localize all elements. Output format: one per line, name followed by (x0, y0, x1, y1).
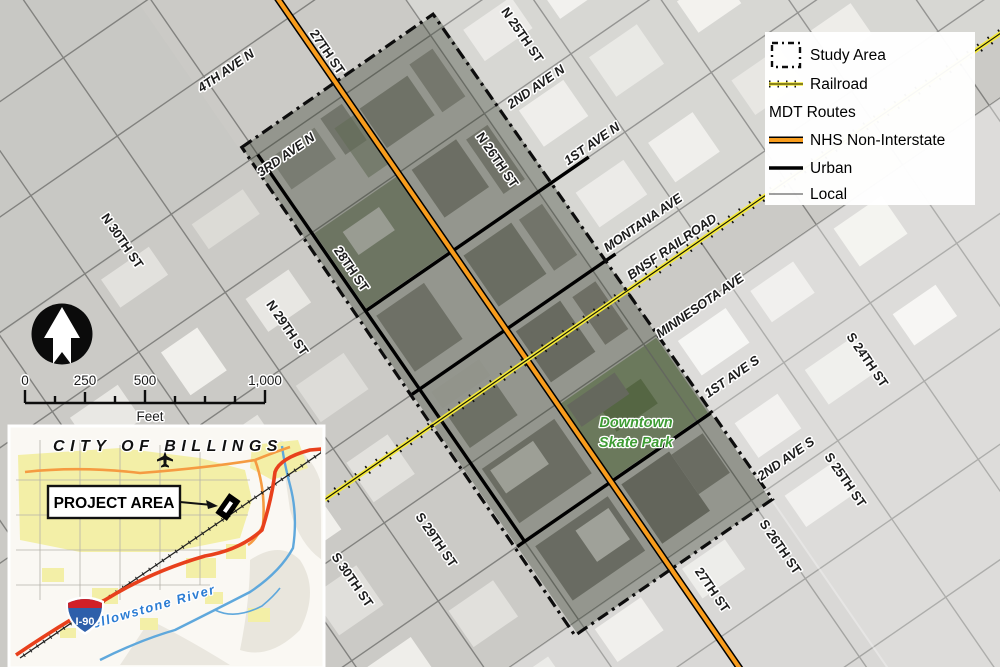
skate-park-line1: Downtown (599, 415, 672, 431)
scale-500: 500 (134, 373, 157, 388)
inset-title: CITY OF BILLINGS (53, 438, 283, 455)
inset-map: CITY OF BILLINGS PROJECT AREA Yellowston… (9, 426, 324, 667)
skate-park-line2: Skate Park (599, 435, 674, 451)
north-arrow (32, 304, 93, 365)
legend-local-label: Local (810, 186, 847, 203)
map-canvas[interactable]: 27TH ST N 25TH ST N 26TH ST 28TH ST N 29… (0, 0, 1000, 667)
legend-mdt-routes-label: MDT Routes (769, 104, 856, 121)
legend-nhs-label: NHS Non-Interstate (810, 132, 945, 149)
i90-shield-label: I-90 (76, 616, 95, 628)
scale-unit: Feet (136, 409, 163, 424)
legend-urban-label: Urban (810, 160, 852, 177)
project-area-label: PROJECT AREA (54, 495, 175, 512)
legend: Study Area Railroad MDT Routes NHS Non-I… (765, 32, 975, 205)
scale-0: 0 (21, 373, 29, 388)
legend-railroad-label: Railroad (810, 76, 868, 93)
scale-250: 250 (74, 373, 97, 388)
legend-study-area-label: Study Area (810, 47, 886, 64)
scale-1000: 1,000 (248, 373, 282, 388)
map-document: 27TH ST N 25TH ST N 26TH ST 28TH ST N 29… (0, 0, 1000, 667)
